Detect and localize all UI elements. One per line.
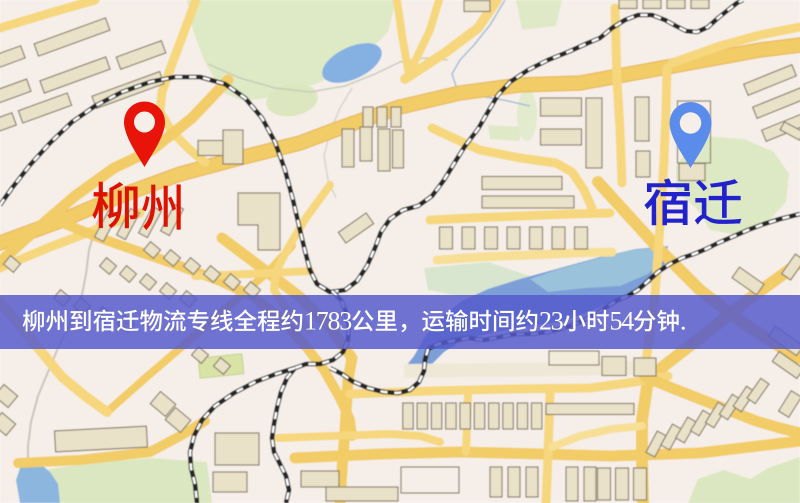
svg-text:.: .	[680, 307, 687, 336]
svg-text:3: 3	[551, 307, 564, 336]
svg-text:4: 4	[621, 307, 634, 336]
svg-text:3: 3	[339, 307, 352, 336]
